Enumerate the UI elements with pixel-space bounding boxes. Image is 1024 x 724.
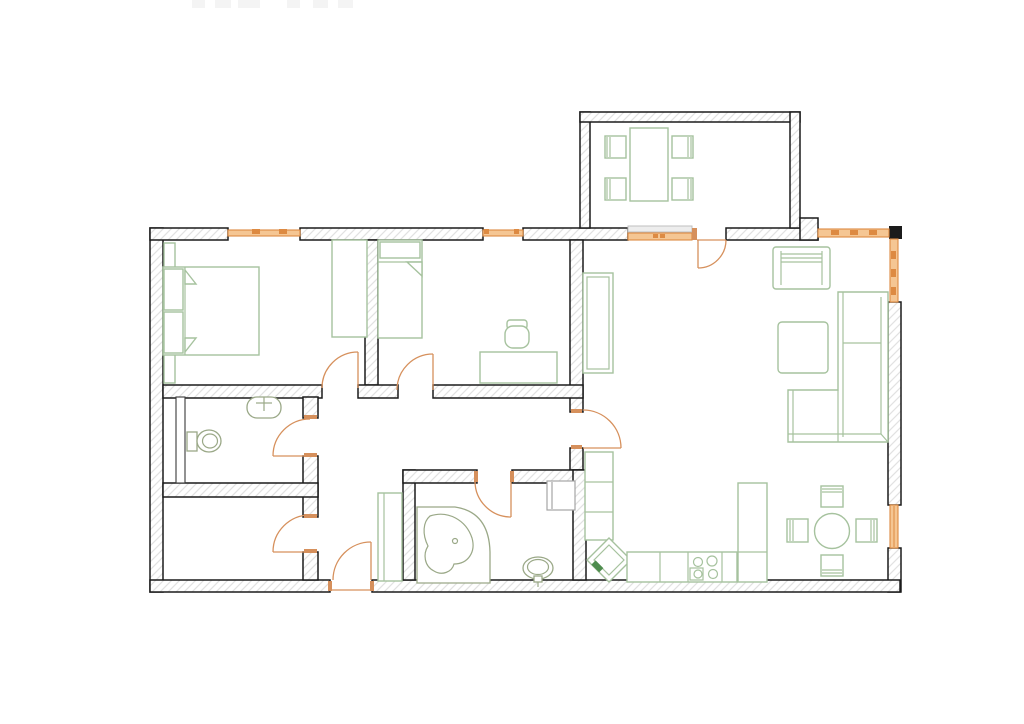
cropped-header-artifact bbox=[192, 0, 353, 8]
wardrobe bbox=[332, 240, 367, 337]
door-bedroom-2 bbox=[397, 354, 433, 390]
loveseat bbox=[773, 247, 830, 289]
wall-top-a bbox=[150, 228, 228, 240]
door-bedroom-1 bbox=[322, 352, 358, 388]
washbasin bbox=[247, 397, 281, 418]
wall-bath1-storage-divider bbox=[163, 483, 318, 497]
wall-top-b bbox=[300, 228, 483, 240]
corner-bathtub bbox=[417, 507, 490, 583]
wall-bath1-right-a bbox=[303, 397, 318, 418]
wall-living-left-stub bbox=[570, 448, 583, 470]
floor-plan-canvas bbox=[0, 0, 1024, 724]
desk bbox=[480, 352, 557, 383]
room-kitchen bbox=[585, 452, 767, 582]
room-bedroom-1 bbox=[163, 240, 367, 383]
pillow bbox=[380, 242, 420, 258]
door-bathroom-2 bbox=[474, 471, 514, 517]
toilet bbox=[187, 430, 221, 452]
round-table bbox=[815, 514, 850, 549]
balcony-wall-top bbox=[580, 112, 800, 122]
floor-plan-page bbox=[0, 0, 1024, 724]
balcony-wall-left bbox=[580, 112, 590, 228]
window-corner-top bbox=[818, 229, 889, 237]
wall-top-c bbox=[523, 228, 628, 240]
balcony-sliding-door bbox=[628, 226, 726, 240]
partition-screen bbox=[176, 397, 185, 483]
balcony-chair bbox=[605, 136, 626, 158]
balcony-wall-right bbox=[790, 112, 800, 228]
wall-hall-top-a bbox=[163, 385, 322, 398]
wall-corner-block bbox=[889, 226, 902, 239]
door-storage bbox=[273, 514, 317, 553]
wall-bath2-left bbox=[403, 470, 415, 580]
door-entrance bbox=[328, 542, 374, 591]
room-bathroom-2 bbox=[417, 481, 575, 587]
balcony-chair bbox=[672, 136, 693, 158]
wall-storage-right bbox=[303, 552, 318, 580]
balcony-chair bbox=[605, 178, 626, 200]
balcony-chair bbox=[672, 178, 693, 200]
door-hall-to-kitchen bbox=[571, 409, 621, 449]
pillow bbox=[164, 312, 183, 353]
kitchen-counter-bottom bbox=[627, 552, 737, 582]
window-bedroom-2 bbox=[483, 229, 523, 236]
wall-right-a bbox=[888, 302, 901, 505]
door-balcony bbox=[698, 240, 726, 268]
room-balcony bbox=[605, 128, 693, 201]
wall-hall-top-c bbox=[433, 385, 583, 398]
room-bedroom-2 bbox=[378, 240, 557, 383]
corner-sink bbox=[587, 538, 631, 582]
window-right-lower bbox=[890, 505, 898, 548]
balcony-wall-junction bbox=[800, 218, 818, 240]
desk-chair bbox=[505, 326, 529, 348]
window-corner-right bbox=[890, 239, 898, 302]
coffee-table bbox=[778, 322, 828, 373]
wall-bottom-a bbox=[150, 580, 330, 592]
dining-set-round bbox=[787, 486, 877, 576]
balcony-table bbox=[630, 128, 668, 201]
tall-cabinet bbox=[738, 483, 767, 582]
room-living bbox=[583, 247, 888, 576]
kitchen-counter-left bbox=[585, 452, 613, 540]
pillow bbox=[164, 269, 183, 310]
door-bathroom-1 bbox=[273, 415, 317, 457]
room-hallway bbox=[378, 493, 402, 581]
wall-hall-top-b bbox=[358, 385, 398, 398]
room-bathroom-1 bbox=[176, 397, 281, 483]
wall-left bbox=[150, 228, 163, 592]
washing-machine bbox=[547, 481, 575, 510]
wall-bath2-top-a bbox=[403, 470, 477, 483]
window-bedroom-1 bbox=[228, 229, 300, 236]
hall-wardrobe bbox=[378, 493, 402, 581]
